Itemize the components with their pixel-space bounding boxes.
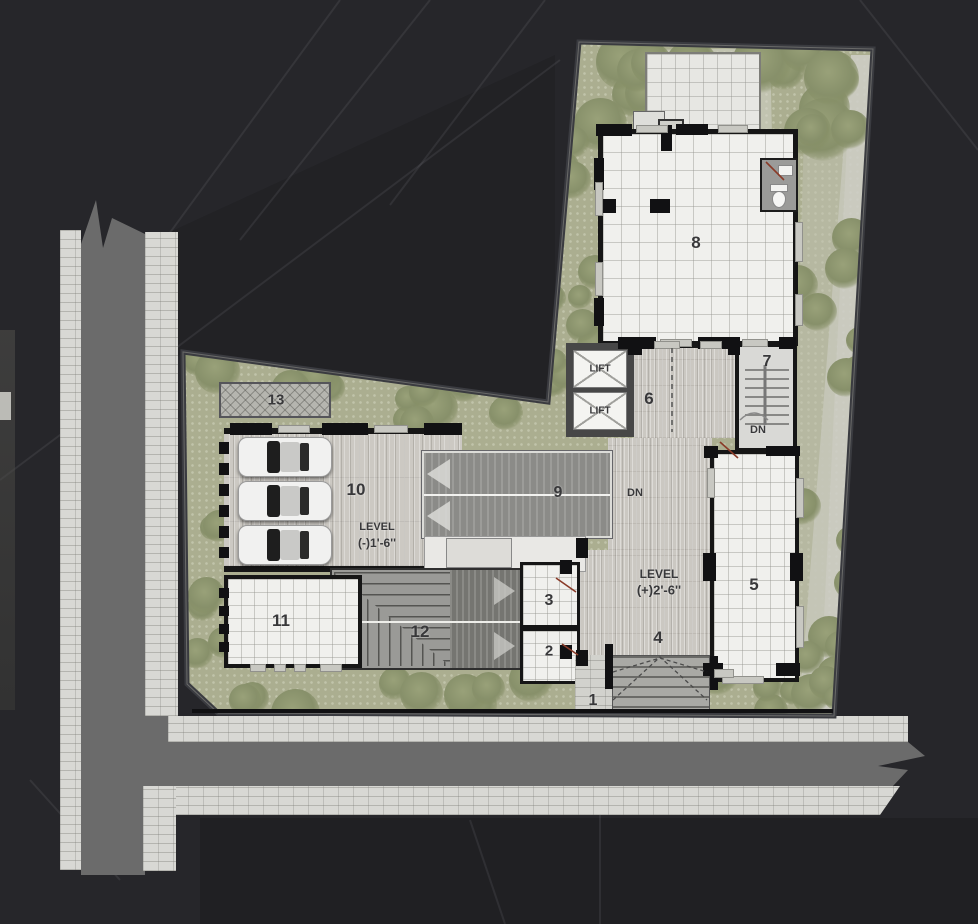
bottom-road-sidewalk-north [168,716,908,742]
tree-icon [409,377,439,407]
wall-pier [230,423,272,435]
car-rear-window [300,487,309,515]
tree-icon [836,526,865,555]
car-rear-window [300,443,309,471]
wall-opening [796,606,804,648]
tree-icon [568,285,592,309]
tree-icon [804,50,859,105]
wall-opening [700,341,722,349]
ramp-centerline [424,494,610,496]
room-8-label: 8 [691,233,700,253]
car-icon [238,525,332,565]
car-roof [280,486,300,516]
tree-icon [472,672,505,705]
car-icon [238,437,332,477]
entrance-steps [612,655,710,712]
road-junction-patch [145,716,168,743]
room-3-label: 3 [545,592,554,610]
wall-opening [795,222,803,262]
tree-icon [824,685,849,710]
room-11-label: 11 [272,611,290,631]
wall-opening [636,125,668,133]
tree-icon [556,126,589,159]
room-11 [224,575,362,668]
wall-pier [219,526,229,538]
car-rear-window [300,531,309,559]
wall-pier [424,423,462,435]
site-plan-canvas: 1 2 3 4 5 6 7 8 9 10 11 12 13 LIFT LIFT … [0,0,978,924]
wall-opening [714,669,734,678]
stair-treads [745,369,789,427]
bottom-road-sidewalk-south [143,786,900,815]
wall-opening [718,125,748,133]
room-7-label: 7 [763,353,772,371]
tree-icon [553,161,591,199]
ramp-centerline [334,621,530,623]
ramp-arrow-icon [494,577,515,605]
wall-pier [576,650,588,666]
room-4-label: 4 [653,628,662,648]
lift-label: LIFT [589,364,610,375]
car-windshield [267,529,280,561]
tree-icon [537,284,566,313]
wall-pier [576,538,588,558]
wall-pier [219,606,229,616]
car-roof [280,442,300,472]
ramp-arrow-icon [494,632,515,660]
parking-level-value: (-)1'-6'' [358,536,396,550]
room-1-label: 1 [589,692,598,710]
wall-pier [219,624,229,634]
wall-pier [219,442,229,454]
ramp-dn-label: DN [627,487,643,499]
toilet-room [760,158,798,212]
wall-opening [595,182,603,216]
tree-icon [489,396,523,430]
wall-opening [374,425,408,433]
wall-opening [250,664,266,672]
tree-icon [229,684,261,716]
room-9-ramp [422,451,612,538]
wall-pier [703,553,716,581]
bottom-road-asphalt [81,742,925,786]
stair-dn-label: DN [750,424,766,436]
wall-opening [796,478,804,518]
wall-pier [219,642,229,652]
wall-pier [776,663,800,676]
wall-pier [560,645,572,659]
wall-opening [294,664,306,672]
wall-pier [628,337,642,355]
left-road-sidewalk-west [60,230,81,870]
wall-opening [742,339,768,347]
room-10-label: 10 [347,480,366,500]
ramp-arrow-icon [427,501,450,531]
tree-icon [446,363,485,402]
wall-pier [219,505,229,517]
tree-icon [827,358,866,397]
lift-block [566,343,634,437]
lift-label: LIFT [589,406,610,417]
wall-pier [322,423,368,435]
wall-opening [707,468,715,498]
tree-icon [506,335,553,382]
adjacent-balcony [0,392,11,420]
wall-pier [650,199,670,213]
room-5 [710,450,799,682]
wall-pier [779,337,796,349]
room-13-label: 13 [268,392,285,409]
left-road-sidewalk-south-leg [143,786,176,871]
entrance-level-value: (+)2'-6'' [637,583,681,598]
tree-icon [400,672,443,715]
wall-pier [790,553,803,581]
wall-opening [654,341,680,349]
tree-icon [825,248,866,289]
wall-opening [320,664,342,672]
washbasin-icon [778,165,793,176]
wall-pier [704,446,718,458]
adjacent-building-sliver [0,330,15,710]
car-windshield [267,485,280,517]
tree-icon [834,567,866,599]
room-12-label: 12 [411,622,430,642]
parking-level-label: LEVEL [359,521,394,533]
ramp-arrow-icon [427,459,450,489]
wall-pier [605,644,613,689]
wall-pier [596,124,632,136]
room-5-label: 5 [749,575,758,595]
car-roof [280,530,300,560]
room-2-label: 2 [545,643,553,660]
toilet-bowl-icon [772,191,786,208]
wall-pier [676,124,708,135]
mini-stair [446,538,512,568]
wall-pier [219,484,229,496]
tree-icon [796,114,829,147]
wall-opening [595,262,603,296]
wall-opening [795,294,803,326]
wall-pier [219,588,229,598]
wall-pier [219,547,229,558]
room-6-label: 6 [644,389,653,409]
wall-opening [278,425,310,433]
tree-icon [831,110,870,149]
corridor [608,438,712,550]
left-road-sidewalk-east [145,232,178,716]
tree-icon [542,349,567,374]
wall-pier [219,463,229,475]
wall-pier [728,337,740,355]
wall-pier [560,560,572,574]
car-icon [238,481,332,521]
car-windshield [267,441,280,473]
room-9-label: 9 [554,484,563,502]
wall-opening [274,664,286,672]
wall-pier [594,298,604,326]
wall-pier [766,446,800,456]
tree-icon [846,327,873,354]
entrance-level-label: LEVEL [640,567,679,581]
